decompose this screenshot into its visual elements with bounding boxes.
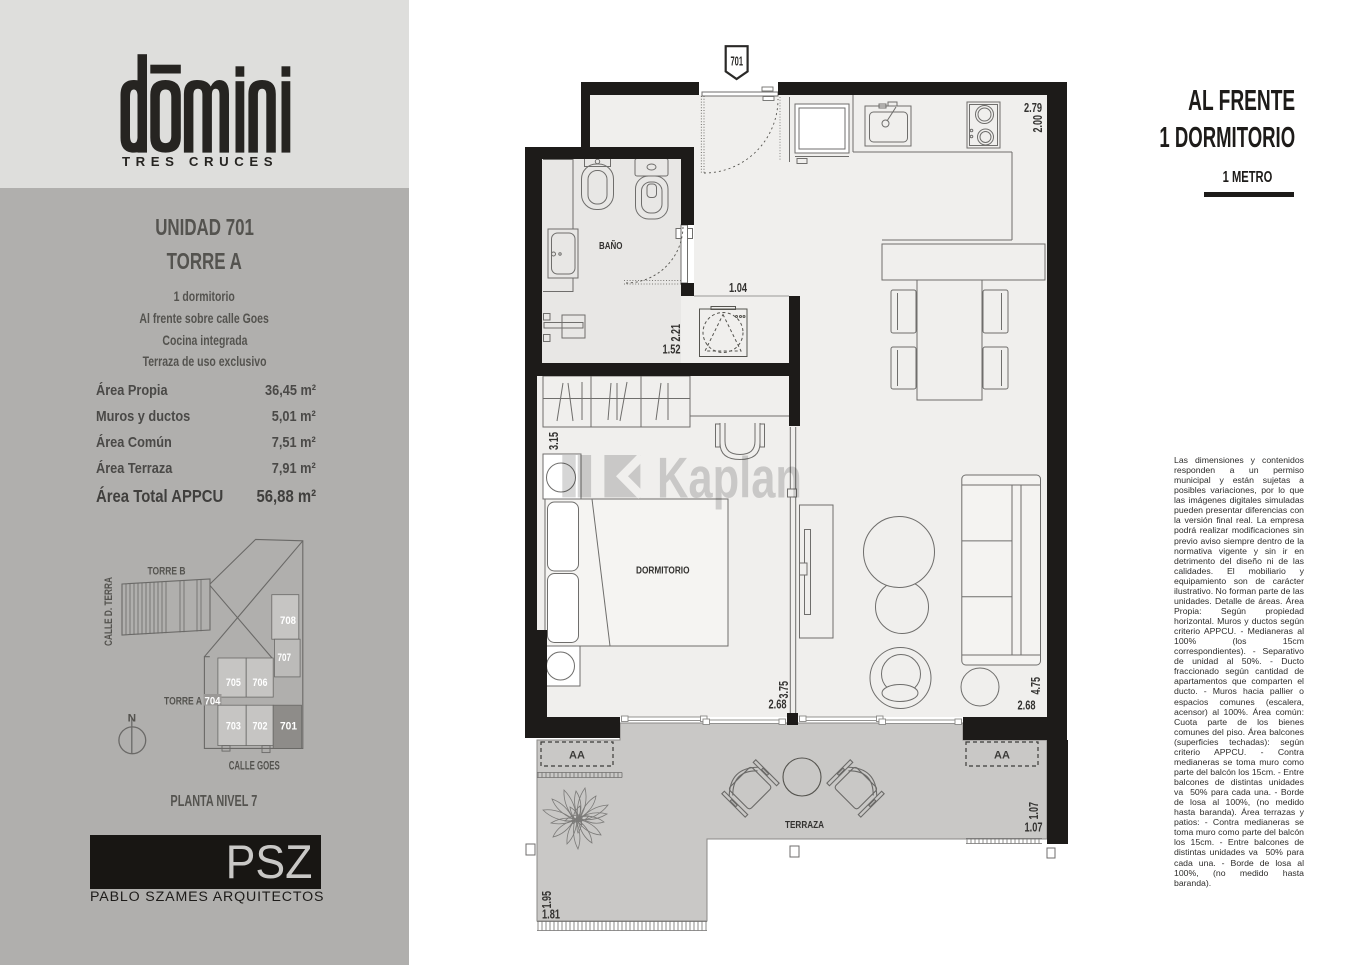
svg-text:706: 706: [253, 677, 268, 689]
svg-text:1.07: 1.07: [1027, 802, 1041, 820]
svg-text:3.15: 3.15: [547, 432, 561, 450]
svg-text:TERRAZA: TERRAZA: [785, 819, 824, 831]
svg-text:TORRE B: TORRE B: [148, 566, 186, 578]
svg-text:TRES CRUCES: TRES CRUCES: [122, 154, 278, 169]
svg-text:BAÑO: BAÑO: [599, 239, 623, 252]
svg-text:Kaplan: Kaplan: [657, 447, 802, 511]
svg-text:2.79: 2.79: [1024, 101, 1042, 115]
svg-text:2.21: 2.21: [669, 324, 683, 342]
svg-text:AA: AA: [994, 750, 1010, 762]
svg-text:2.00: 2.00: [1031, 115, 1045, 133]
svg-text:1.52: 1.52: [663, 343, 681, 357]
svg-text:CALLE GOES: CALLE GOES: [229, 761, 280, 773]
svg-text:701: 701: [731, 55, 744, 69]
svg-text:N: N: [128, 712, 137, 724]
svg-text:4.75: 4.75: [1029, 677, 1043, 695]
svg-text:TORRE A: TORRE A: [164, 696, 202, 708]
svg-text:2.68: 2.68: [769, 698, 787, 712]
svg-text:701: 701: [280, 721, 297, 733]
svg-text:AA: AA: [569, 750, 585, 762]
svg-text:1.04: 1.04: [729, 281, 747, 295]
svg-text:1.81: 1.81: [542, 908, 560, 922]
svg-text:3.75: 3.75: [777, 681, 791, 699]
svg-text:CALLE D. TERRA: CALLE D. TERRA: [103, 577, 115, 646]
svg-text:2.68: 2.68: [1018, 699, 1036, 713]
svg-text:702: 702: [253, 721, 268, 733]
svg-text:DORMITORIO: DORMITORIO: [636, 565, 690, 577]
svg-text:707: 707: [278, 652, 292, 664]
svg-text:708: 708: [280, 615, 296, 627]
svg-text:703: 703: [226, 721, 241, 733]
svg-text:1.95: 1.95: [540, 891, 554, 909]
svg-text:705: 705: [226, 677, 241, 689]
svg-text:1.07: 1.07: [1025, 821, 1043, 835]
